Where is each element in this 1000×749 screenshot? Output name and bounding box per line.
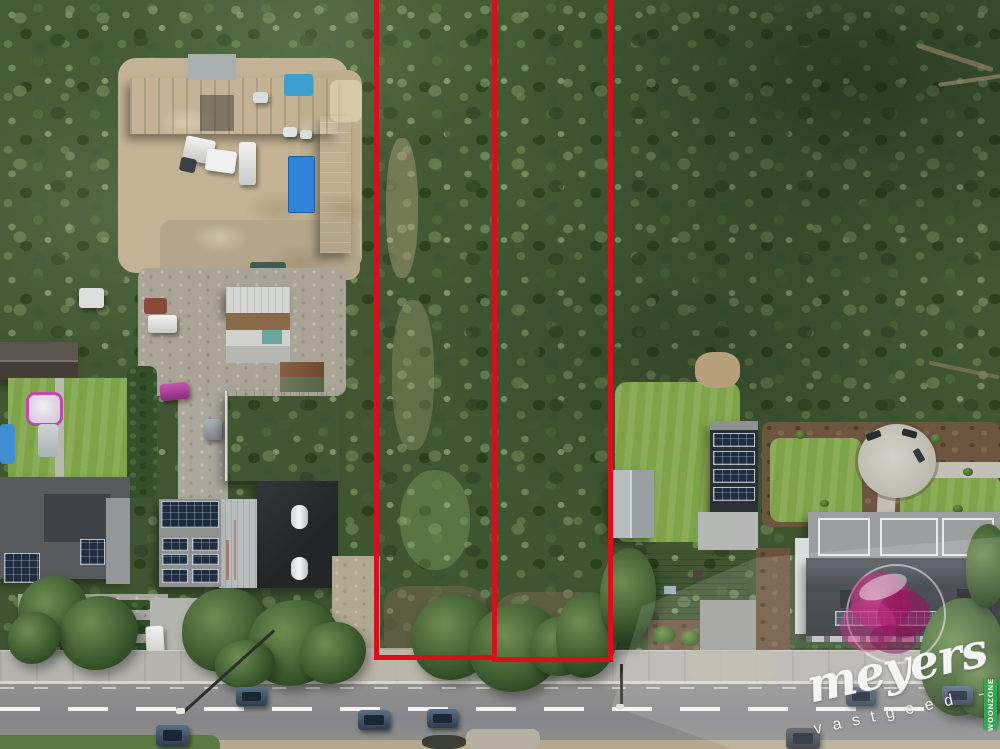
solar-array: [713, 433, 755, 447]
truck-box: [205, 148, 238, 174]
parked-car: [300, 130, 312, 139]
caravan: [79, 288, 104, 308]
garage-roof: [608, 470, 654, 538]
solar-array: [192, 554, 219, 565]
patio: [698, 512, 758, 550]
garden-lawn: [770, 438, 862, 522]
rust-streak: [234, 520, 236, 580]
dirt-patch: [695, 352, 740, 388]
solar-array: [162, 554, 188, 565]
car: [156, 725, 189, 746]
street-light-head: [176, 708, 185, 714]
white-car: [148, 315, 177, 333]
car: [236, 687, 267, 706]
solar-array: [713, 451, 755, 465]
solar-array: [192, 569, 219, 583]
blue-container: [288, 156, 315, 213]
solar-array: [161, 501, 219, 528]
garden-bush: [930, 434, 942, 443]
garden-bush: [820, 500, 829, 507]
roof-vent-cylinder: [291, 505, 308, 529]
hedge-row: [127, 366, 157, 498]
white-van: [239, 142, 256, 185]
villa-light-wall: [106, 498, 130, 584]
corrugated-roof: [219, 499, 257, 588]
old-shed-roof: [226, 287, 290, 313]
parked-car: [283, 127, 297, 137]
gravel-island: [466, 729, 540, 749]
car: [358, 710, 390, 730]
solar-array: [713, 487, 755, 501]
parked-car: [253, 92, 268, 103]
roadside-bush: [422, 735, 466, 749]
trailer: [144, 298, 167, 314]
teal-patch: [262, 330, 282, 344]
solar-array: [192, 538, 219, 551]
solar-array: [4, 553, 40, 583]
shed-extension-roof: [188, 54, 236, 80]
grey-car: [204, 419, 222, 440]
mossy-roof: [280, 377, 324, 392]
solar-array: [162, 569, 188, 583]
solar-array: [162, 538, 188, 551]
house-roof: [0, 342, 78, 380]
rust-streak: [226, 540, 229, 580]
roof-vent-cylinder: [291, 557, 308, 580]
zone-label: WOONZONE: [984, 679, 997, 729]
old-shed-roof: [226, 346, 290, 363]
bouncy-castle: [26, 392, 63, 426]
solar-array: [713, 469, 755, 483]
castle-slide: [38, 424, 58, 457]
shed-roof-patch: [200, 95, 234, 131]
concrete-drive: [178, 396, 228, 506]
rust-roof: [280, 362, 324, 377]
parcel-outline-right: [492, 0, 613, 662]
zone-label-text: WOONZONE: [986, 678, 995, 731]
garden-bush: [963, 468, 973, 476]
swimming-pool: [0, 424, 15, 464]
aerial-photo: meyers vastgoed — WOONZONE: [0, 0, 1000, 749]
carport-grey-edge: [710, 421, 758, 430]
warehouse-roof: [225, 391, 340, 481]
purple-car: [159, 382, 190, 402]
truck-cab: [179, 156, 198, 173]
blue-roof-building: [320, 116, 351, 253]
solar-array: [80, 539, 105, 565]
old-shed-wood-band: [226, 313, 290, 330]
villa-upper-roof: [44, 494, 110, 542]
blue-tarp: [284, 74, 313, 96]
car: [427, 709, 458, 728]
garden-bush: [795, 430, 806, 439]
chimney: [693, 570, 703, 580]
parcel-outline-left: [374, 0, 497, 660]
